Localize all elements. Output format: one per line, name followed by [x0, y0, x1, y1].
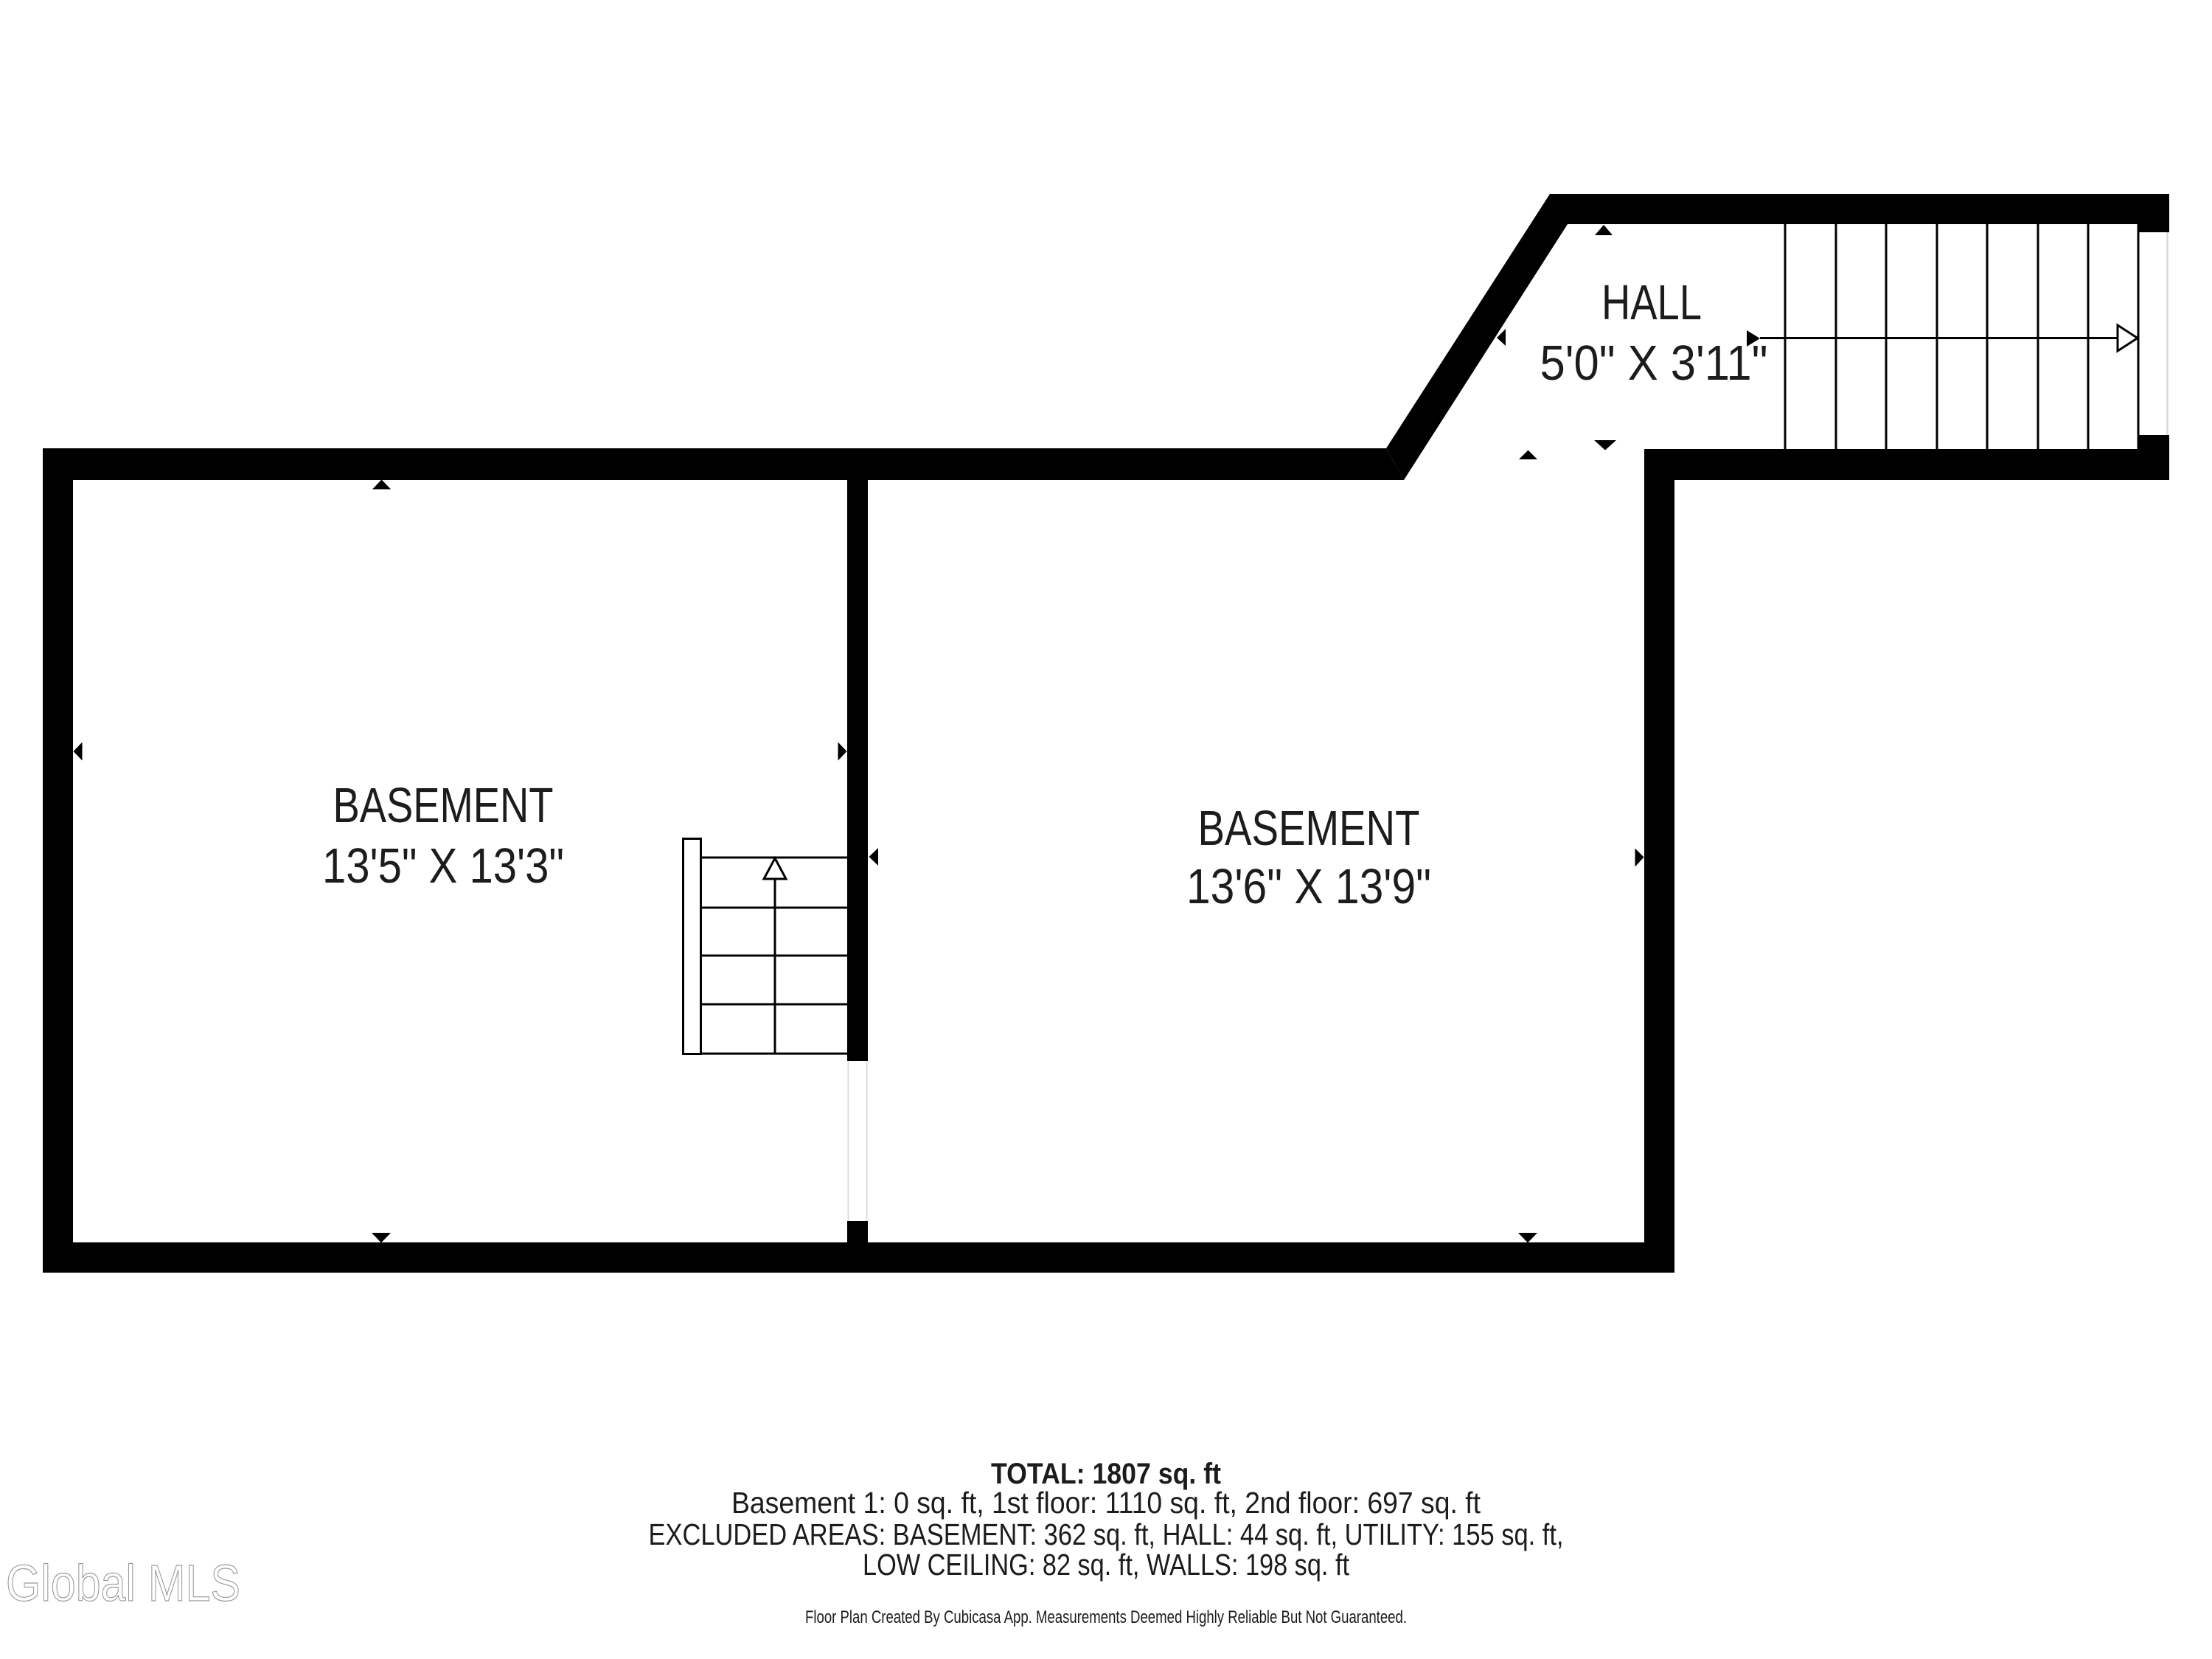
- svg-text:HALL: HALL: [1601, 275, 1702, 330]
- svg-text:13'6" X 13'9": 13'6" X 13'9": [1186, 859, 1431, 914]
- svg-text:BASEMENT: BASEMENT: [1198, 801, 1420, 856]
- svg-text:5'0" X 3'11": 5'0" X 3'11": [1540, 335, 1768, 391]
- svg-text:EXCLUDED AREAS: BASEMENT: 362: EXCLUDED AREAS: BASEMENT: 362 sq. ft, HA…: [649, 1517, 1564, 1551]
- svg-text:Floor Plan Created By Cubicasa: Floor Plan Created By Cubicasa App. Meas…: [805, 1607, 1407, 1627]
- svg-text:Global MLS: Global MLS: [6, 1554, 240, 1612]
- svg-text:13'5" X 13'3": 13'5" X 13'3": [322, 838, 564, 894]
- svg-text:Basement 1: 0 sq. ft, 1st floo: Basement 1: 0 sq. ft, 1st floor: 1110 sq…: [731, 1486, 1481, 1520]
- svg-text:BASEMENT: BASEMENT: [333, 778, 554, 833]
- svg-text:LOW CEILING: 82 sq. ft, WALLS:: LOW CEILING: 82 sq. ft, WALLS: 198 sq. f…: [863, 1548, 1350, 1582]
